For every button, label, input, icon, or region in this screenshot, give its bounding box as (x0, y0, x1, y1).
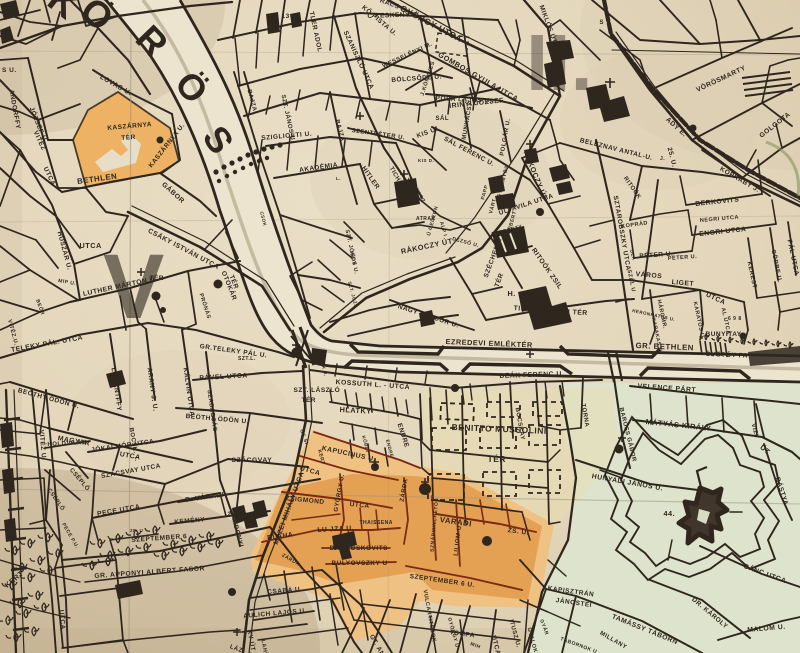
svg-text:J.: J. (660, 156, 665, 162)
svg-text:DR. MOSKOVITS: DR. MOSKOVITS (330, 545, 389, 552)
svg-text:TÉR: TÉR (488, 454, 507, 464)
svg-text:S U.: S U. (2, 67, 17, 74)
svg-text:SZT. LÁSZLÓ: SZT. LÁSZLÓ (294, 385, 341, 394)
svg-text:ATRAK: ATRAK (416, 216, 436, 222)
svg-text:L.: L. (336, 176, 341, 181)
svg-text:44.: 44. (664, 509, 676, 518)
svg-text:BULYOVSZKY U: BULYOVSZKY U (332, 560, 388, 567)
svg-text:13: 13 (282, 13, 290, 20)
svg-text:TÉR: TÉR (150, 273, 165, 282)
svg-text:BUNYITAY: BUNYITAY (706, 331, 742, 338)
svg-text:KIS D.: KIS D. (418, 158, 434, 163)
svg-text:H.: H. (508, 289, 516, 298)
svg-text:SZT.L.: SZT.L. (238, 356, 256, 362)
svg-text:SÁL: SÁL (436, 115, 450, 122)
svg-text:HLATKY: HLATKY (339, 405, 371, 416)
svg-text:6 9 8: 6 9 8 (728, 316, 742, 322)
svg-text:UTCA: UTCA (80, 241, 102, 250)
svg-text:THAISSENA: THAISSENA (360, 520, 393, 526)
svg-text:TÉR: TÉR (302, 395, 317, 404)
svg-text:28. U: 28. U (130, 528, 143, 533)
svg-text:S: S (600, 20, 605, 26)
svg-text:SZÁCGVAY: SZÁCGVAY (232, 455, 273, 464)
